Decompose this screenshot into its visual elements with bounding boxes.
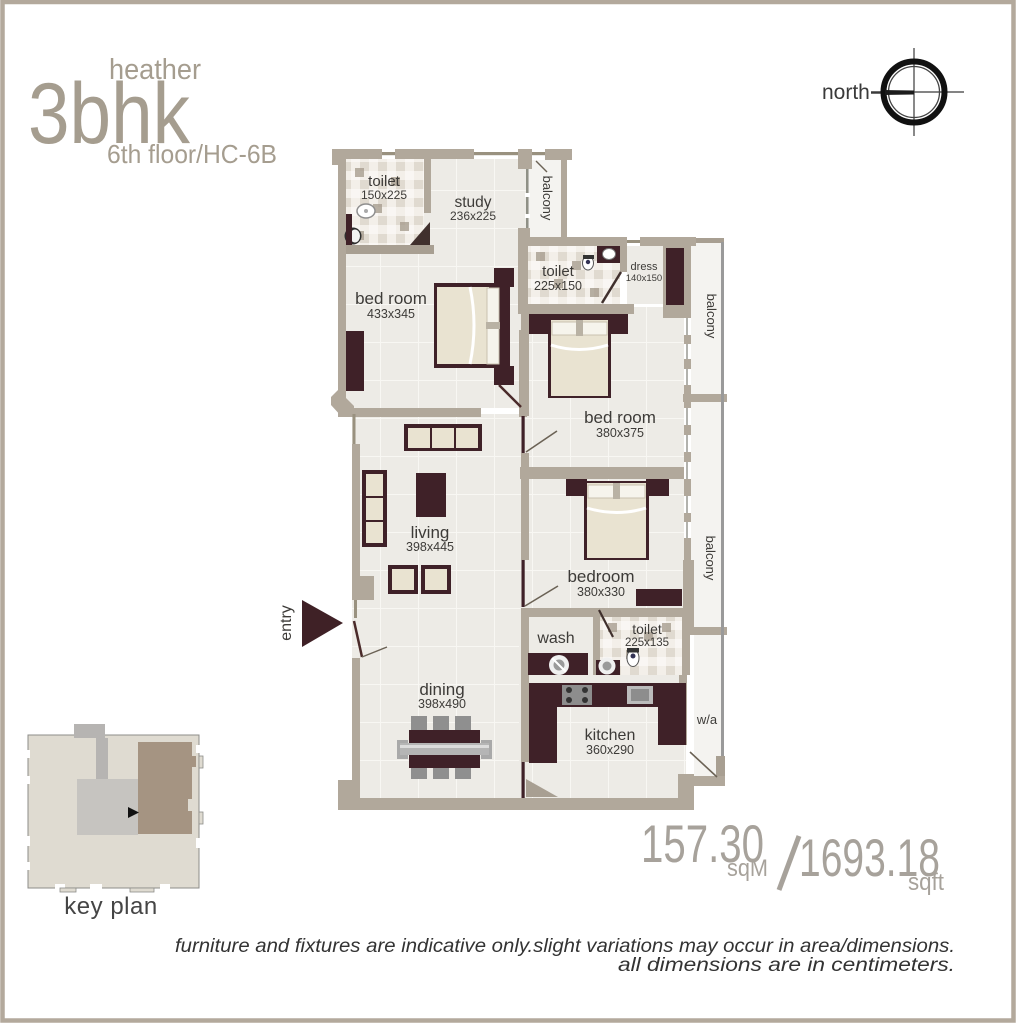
svg-text:w/a: w/a — [696, 712, 718, 727]
svg-text:360x290: 360x290 — [586, 743, 634, 757]
svg-text:toilet: toilet — [632, 621, 662, 637]
svg-text:433x345: 433x345 — [367, 307, 415, 321]
svg-text:wash: wash — [536, 630, 574, 647]
svg-text:225x150: 225x150 — [534, 279, 582, 293]
svg-text:sqft: sqft — [908, 869, 944, 896]
svg-text:398x490: 398x490 — [418, 697, 466, 711]
svg-text:entry: entry — [278, 605, 295, 641]
svg-text:key plan: key plan — [64, 893, 157, 920]
svg-text:236x225: 236x225 — [450, 209, 496, 223]
svg-text:150x225: 150x225 — [361, 188, 407, 202]
svg-text:dress: dress — [631, 261, 658, 273]
svg-text:380x375: 380x375 — [596, 426, 644, 440]
svg-text:225x135: 225x135 — [625, 637, 669, 649]
svg-text:north: north — [822, 81, 870, 104]
svg-text:balcony: balcony — [540, 176, 555, 221]
svg-text:bed room: bed room — [355, 289, 427, 308]
svg-text:kitchen: kitchen — [585, 727, 636, 744]
svg-text:all dimensions are in centimet: all dimensions are in centimeters. — [618, 954, 955, 976]
svg-text:balcony: balcony — [703, 536, 718, 581]
svg-text:140x150: 140x150 — [626, 273, 662, 284]
svg-text:398x445: 398x445 — [406, 540, 454, 554]
svg-text:balcony: balcony — [704, 294, 719, 339]
svg-text:sqM: sqM — [727, 855, 768, 882]
svg-text:380x330: 380x330 — [577, 585, 625, 599]
svg-text:toilet: toilet — [542, 263, 575, 280]
svg-text:6th floor/HC-6B: 6th floor/HC-6B — [107, 139, 277, 169]
svg-text:bed room: bed room — [584, 408, 656, 427]
svg-text:bedroom: bedroom — [567, 567, 634, 586]
